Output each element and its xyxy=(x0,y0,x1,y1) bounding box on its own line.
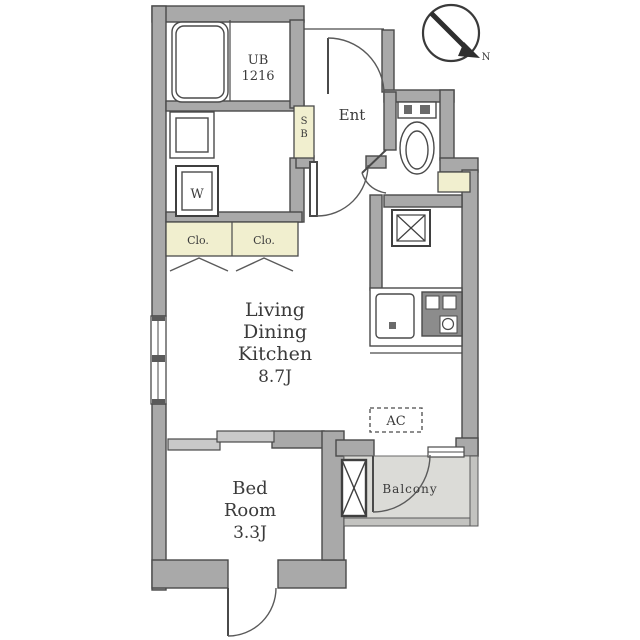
wall-bottom-left xyxy=(152,560,228,588)
wall-toilet-left xyxy=(384,92,396,150)
kitchen-sink-icon xyxy=(376,294,414,338)
wall-washroom-right-upper xyxy=(290,20,304,108)
wall-bedroom-top xyxy=(272,431,324,448)
bedroom-size: 3.3J xyxy=(233,523,267,543)
toilet-icon xyxy=(398,102,436,174)
shoe-box-letter-s: S xyxy=(301,116,308,127)
wall-left-upper xyxy=(152,6,166,316)
bedroom-name-line1: Bed xyxy=(232,478,267,499)
wall-top xyxy=(152,6,304,22)
floor-plan: UB 1216 Ent S B W Clo. Clo. Living Dinin… xyxy=(0,0,640,640)
stove-icon xyxy=(422,292,462,336)
wall-balcony-left-seg xyxy=(336,440,374,456)
wall-toilet-bottom xyxy=(384,195,462,207)
entry-door-icon xyxy=(328,38,384,94)
closet-folding-door-icon xyxy=(170,258,228,271)
wall-kitchen-partition xyxy=(370,195,382,290)
left-window-icon xyxy=(151,316,166,404)
wall-bottom-right xyxy=(278,560,346,588)
ldk-name-line1: Living xyxy=(245,299,305,321)
bedroom-sliding-door-icon xyxy=(168,431,274,450)
entrance-label: Ent xyxy=(339,106,366,124)
ldk-name-line3: Kitchen xyxy=(238,343,312,365)
unit-bath-label: UB xyxy=(248,53,269,68)
shoe-box-letter-b: B xyxy=(300,129,307,140)
wall-right xyxy=(462,170,478,456)
balcony-label: Balcony xyxy=(382,482,437,496)
wall-porch-pillar xyxy=(382,30,394,92)
refrigerator-space-icon xyxy=(392,210,430,246)
ldk-size: 8.7J xyxy=(258,367,292,387)
balcony-rail-right xyxy=(470,456,478,526)
floor-plan-drawing: UB 1216 Ent S B W Clo. Clo. Living Dinin… xyxy=(0,0,640,640)
wall-toilet-right xyxy=(440,90,454,160)
unit-bath-size: 1216 xyxy=(241,69,274,84)
bathtub-icon xyxy=(172,20,230,102)
closet-folding-door-icon xyxy=(236,258,293,271)
balcony-sliding-window-icon xyxy=(428,447,464,457)
closet-block xyxy=(166,222,298,271)
compass-icon xyxy=(423,5,480,61)
washer-label: W xyxy=(190,187,204,202)
closet-right-label: Clo. xyxy=(253,234,275,247)
hall-door-icon xyxy=(310,162,368,216)
ac-label: AC xyxy=(385,414,405,429)
balcony-rail-bottom xyxy=(344,518,478,526)
vanity-sink-icon xyxy=(170,112,214,158)
bedroom-exterior-door-icon xyxy=(228,588,276,636)
ldk-name-line2: Dining xyxy=(243,321,307,343)
meter-box xyxy=(438,172,470,192)
balcony-drain-pan-icon xyxy=(342,460,366,516)
closet-left-label: Clo. xyxy=(187,234,209,247)
compass-north-label: N xyxy=(482,52,491,63)
bedroom-name-line2: Room xyxy=(224,500,276,521)
kitchen-counter xyxy=(370,288,462,353)
